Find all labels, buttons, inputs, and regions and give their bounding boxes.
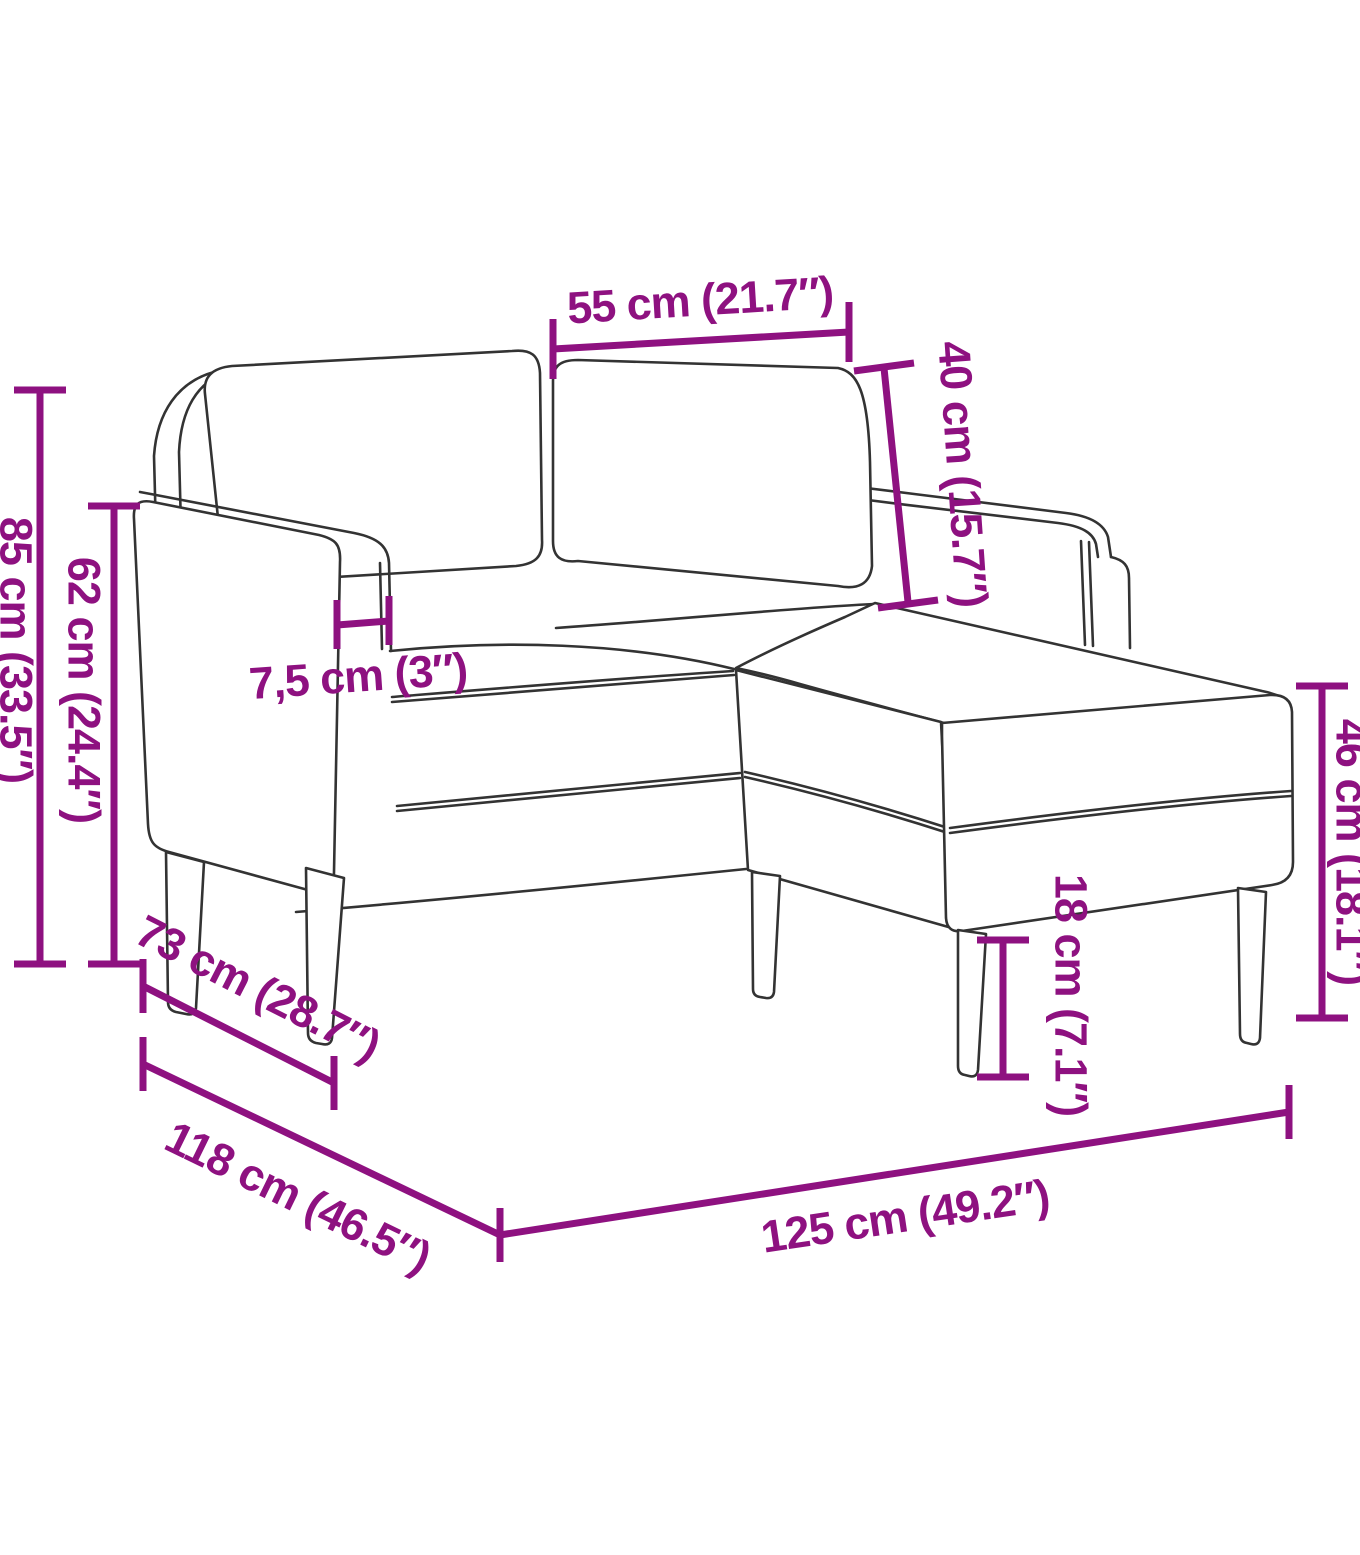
chaise-height-label: 46 cm (18.1″) [1327,719,1360,985]
leg-center [752,872,780,998]
total-height-label: 85 cm (33.5″) [0,517,42,783]
seat-width-label: 55 cm (21.7″) [566,266,835,333]
dimension-backrest-height: 40 cm (15.7″) [854,339,998,608]
total-width-label: 125 cm (49.2″) [758,1169,1053,1262]
leg-chaise-right [1238,888,1266,1044]
right-back-cushion [553,360,872,587]
armrest-height-label: 62 cm (24.4″) [59,557,110,823]
dimension-total-height: 85 cm (33.5″) [0,390,66,964]
leg-height-label: 18 cm (7.1″) [1046,874,1097,1116]
diagram-canvas: 55 cm (21.7″) 40 cm (15.7″) 85 cm (33.5″… [0,0,1360,1555]
sofa-dimension-diagram: 55 cm (21.7″) 40 cm (15.7″) 85 cm (33.5″… [0,0,1360,1555]
sofa-outline [134,351,1293,1077]
chaise-longue [736,603,1293,931]
backrest-height-label: 40 cm (15.7″) [928,339,997,608]
dimension-armrest-height: 62 cm (24.4″) [59,506,141,964]
dimension-chaise-height: 46 cm (18.1″) [1296,686,1360,1018]
dimension-total-width: 125 cm (49.2″) [500,1085,1289,1263]
leg-chaise-front-left [958,930,986,1076]
